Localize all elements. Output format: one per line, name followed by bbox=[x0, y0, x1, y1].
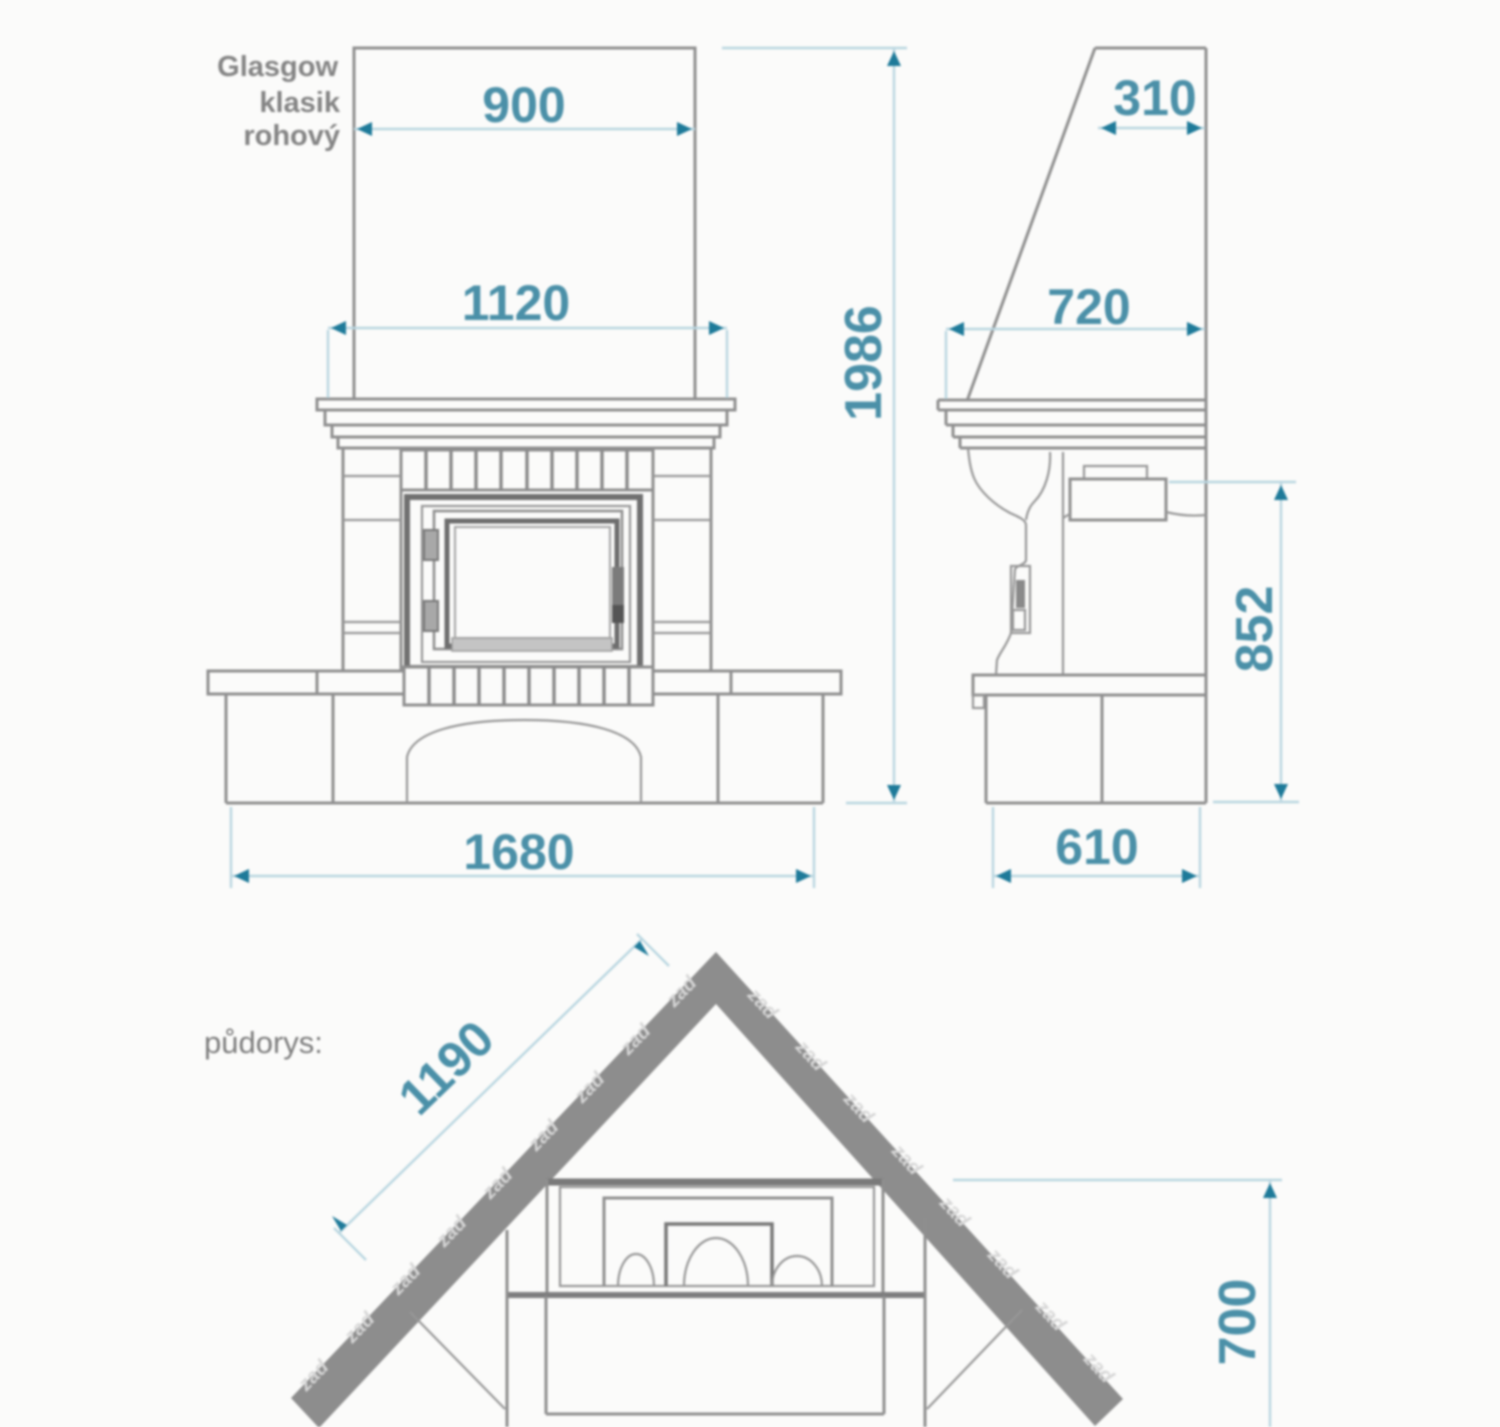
svg-text:1120: 1120 bbox=[462, 275, 570, 331]
svg-text:852: 852 bbox=[1226, 586, 1284, 673]
svg-text:1680: 1680 bbox=[463, 824, 574, 880]
svg-text:Glasgow: Glasgow bbox=[217, 51, 338, 83]
svg-text:klasik: klasik bbox=[259, 87, 340, 119]
svg-text:rohový: rohový bbox=[243, 120, 340, 152]
svg-text:310: 310 bbox=[1113, 70, 1196, 126]
svg-text:1986: 1986 bbox=[835, 305, 893, 421]
svg-text:900: 900 bbox=[482, 77, 565, 133]
svg-text:610: 610 bbox=[1055, 819, 1138, 875]
svg-text:700: 700 bbox=[1209, 1279, 1267, 1366]
svg-text:půdorys:: půdorys: bbox=[204, 1025, 323, 1060]
svg-text:720: 720 bbox=[1047, 279, 1130, 335]
svg-text:1190: 1190 bbox=[388, 1010, 505, 1126]
